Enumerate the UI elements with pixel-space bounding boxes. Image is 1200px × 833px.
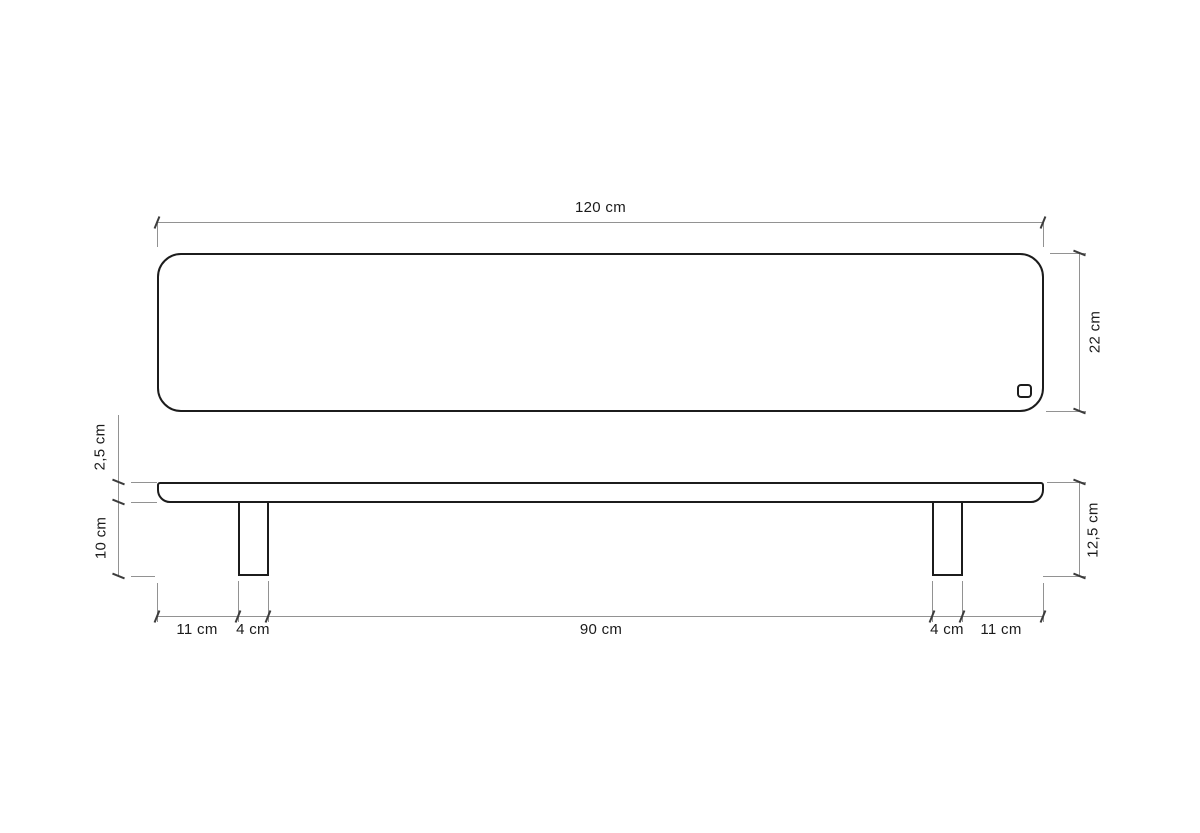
technical-drawing-canvas: 120 cm 22 cm 2,5 cm 10 cm 12,5 cm 11 cm … (0, 0, 1200, 833)
dim-label-overall-width: 120 cm (157, 200, 1044, 215)
dimension-line-left-heights (118, 415, 119, 576)
dim-label-right-leg-width: 4 cm (930, 622, 964, 637)
dim-label-left-leg-width: 4 cm (236, 622, 270, 637)
dim-label-top-thickness: 2,5 cm (93, 424, 108, 471)
extension-line (1043, 222, 1044, 247)
dimension-line-overall-height (1079, 482, 1080, 576)
extension-line (131, 576, 155, 577)
dim-label-left-overhang: 11 cm (176, 622, 217, 637)
front-view-right-leg (932, 501, 963, 576)
dimension-line-overall-width (157, 222, 1044, 223)
extension-line (131, 502, 157, 503)
dim-label-overall-height: 12,5 cm (1086, 502, 1101, 557)
dimension-line-overall-depth (1079, 253, 1080, 412)
front-view-top-slab (157, 482, 1044, 503)
dim-label-leg-height: 10 cm (94, 517, 109, 559)
extension-line (157, 222, 158, 247)
cable-grommet-hole (1017, 384, 1032, 398)
dim-label-leg-span: 90 cm (580, 622, 622, 637)
dimension-line-bottom-chain (157, 616, 1044, 617)
dim-label-right-overhang: 11 cm (980, 622, 1021, 637)
dim-label-overall-depth: 22 cm (1088, 311, 1103, 353)
front-view-left-leg (238, 501, 269, 576)
top-view-outline (157, 253, 1044, 412)
extension-line (131, 482, 157, 483)
